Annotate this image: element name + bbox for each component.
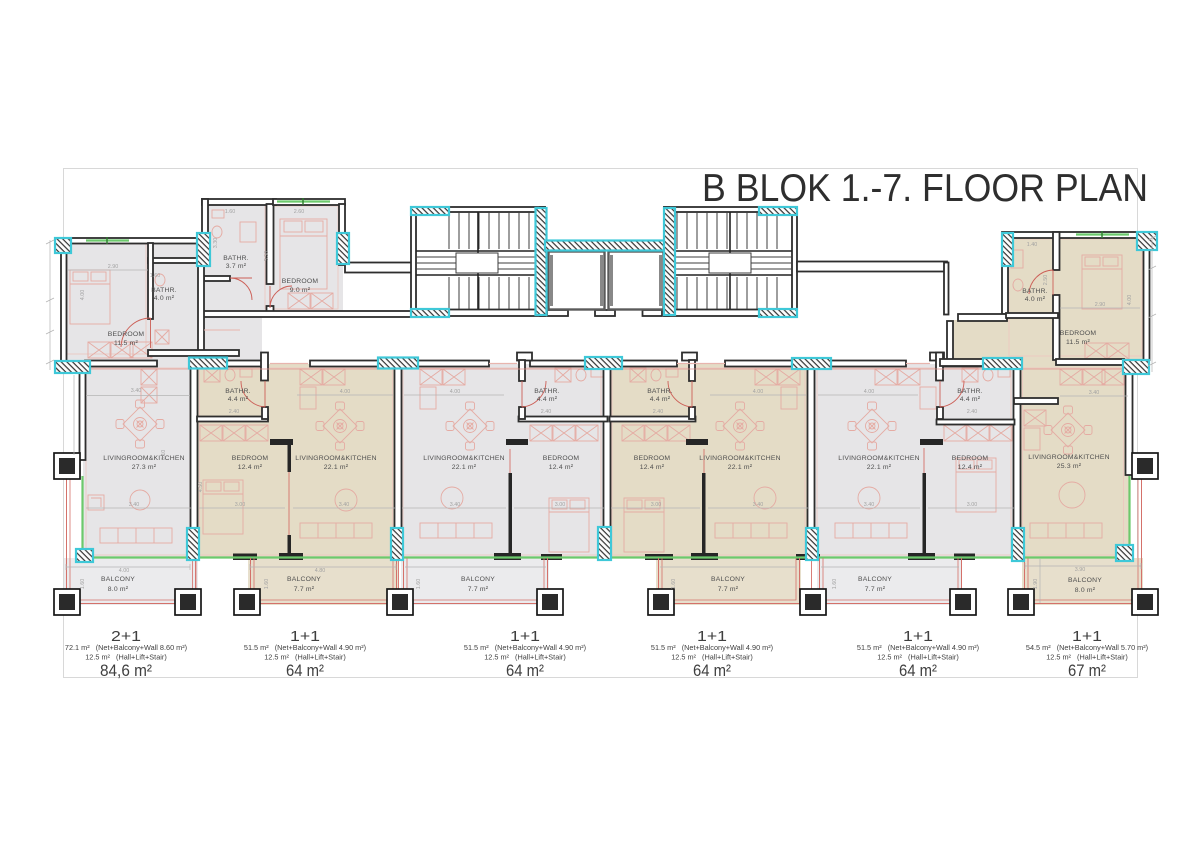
svg-text:1.60: 1.60	[671, 579, 677, 590]
svg-text:22.1 m²: 22.1 m²	[452, 464, 477, 471]
svg-text:4.0 m²: 4.0 m²	[154, 295, 175, 302]
svg-text:3.40: 3.40	[339, 502, 350, 508]
svg-text:64 m²: 64 m²	[693, 661, 731, 680]
svg-text:4.00: 4.00	[1127, 295, 1133, 306]
svg-text:11.5 m²: 11.5 m²	[1066, 339, 1090, 346]
svg-text:51.5 m² (Net+Balcony+Wall 4.: 51.5 m² (Net+Balcony+Wall 4.90 m²)	[244, 643, 366, 652]
svg-text:BEDROOM: BEDROOM	[952, 455, 989, 462]
svg-text:3.40: 3.40	[864, 502, 875, 508]
svg-text:BATHR.: BATHR.	[647, 388, 673, 395]
svg-text:11.5 m²: 11.5 m²	[114, 340, 138, 347]
svg-text:12.4 m²: 12.4 m²	[238, 464, 263, 471]
svg-text:25.3 m²: 25.3 m²	[1057, 463, 1082, 470]
svg-text:2.40: 2.40	[967, 409, 978, 415]
svg-text:2.40: 2.40	[541, 409, 552, 415]
svg-text:4.00: 4.00	[753, 389, 764, 395]
svg-text:3.40: 3.40	[129, 502, 140, 508]
svg-text:67 m²: 67 m²	[1068, 661, 1106, 680]
svg-text:LIVINGROOM&KITCHEN: LIVINGROOM&KITCHEN	[699, 455, 780, 462]
svg-text:3.00: 3.00	[651, 502, 662, 508]
svg-text:12.4 m²: 12.4 m²	[640, 464, 665, 471]
svg-text:64 m²: 64 m²	[899, 661, 937, 680]
svg-text:3.7 m²: 3.7 m²	[226, 263, 247, 270]
svg-text:LIVINGROOM&KITCHEN: LIVINGROOM&KITCHEN	[103, 455, 184, 462]
svg-text:4.50: 4.50	[198, 482, 204, 493]
svg-text:12.4 m²: 12.4 m²	[958, 464, 983, 471]
svg-text:BALCONY: BALCONY	[101, 576, 135, 583]
svg-text:1.60: 1.60	[416, 579, 422, 590]
svg-text:12.4 m²: 12.4 m²	[549, 464, 574, 471]
svg-text:64 m²: 64 m²	[506, 661, 544, 680]
svg-text:3.40: 3.40	[753, 502, 764, 508]
svg-text:6.10: 6.10	[161, 450, 167, 461]
svg-text:1.60: 1.60	[150, 273, 161, 279]
svg-text:22.1 m²: 22.1 m²	[867, 464, 892, 471]
svg-text:1.60: 1.60	[832, 579, 838, 590]
svg-text:3.40: 3.40	[450, 502, 461, 508]
svg-text:3.40: 3.40	[1089, 390, 1100, 396]
svg-text:9.0 m²: 9.0 m²	[290, 287, 311, 294]
svg-text:BALCONY: BALCONY	[1068, 577, 1102, 584]
svg-text:4.00: 4.00	[450, 389, 461, 395]
svg-text:LIVINGROOM&KITCHEN: LIVINGROOM&KITCHEN	[838, 455, 919, 462]
svg-text:51.5 m² (Net+Balcony+Wall 4.: 51.5 m² (Net+Balcony+Wall 4.90 m²)	[464, 643, 586, 652]
svg-text:4.0 m²: 4.0 m²	[1025, 296, 1046, 303]
svg-text:1.90: 1.90	[1033, 579, 1039, 590]
svg-text:4.00: 4.00	[80, 290, 86, 301]
svg-text:8.0 m²: 8.0 m²	[1075, 587, 1096, 594]
svg-text:3.90: 3.90	[1075, 567, 1086, 573]
svg-text:7.7 m²: 7.7 m²	[294, 586, 315, 593]
svg-text:51.5 m² (Net+Balcony+Wall 4.: 51.5 m² (Net+Balcony+Wall 4.90 m²)	[857, 643, 979, 652]
svg-text:1.60: 1.60	[264, 579, 270, 590]
svg-text:22.1 m²: 22.1 m²	[324, 464, 349, 471]
svg-text:84,6 m²: 84,6 m²	[100, 661, 152, 680]
svg-text:BATHR.: BATHR.	[151, 287, 177, 294]
svg-text:BEDROOM: BEDROOM	[282, 278, 319, 285]
svg-text:3.00: 3.00	[967, 502, 978, 508]
svg-text:4.4 m²: 4.4 m²	[537, 396, 558, 403]
svg-text:BATHR.: BATHR.	[957, 388, 983, 395]
svg-text:3.30: 3.30	[213, 238, 219, 249]
svg-text:4.4 m²: 4.4 m²	[960, 396, 981, 403]
svg-text:2.50: 2.50	[1043, 275, 1049, 286]
svg-text:1.40: 1.40	[1027, 242, 1038, 248]
svg-text:BALCONY: BALCONY	[461, 576, 495, 583]
svg-text:3.50: 3.50	[264, 251, 270, 262]
svg-text:22.1 m²: 22.1 m²	[728, 464, 753, 471]
svg-text:BALCONY: BALCONY	[711, 576, 745, 583]
svg-text:51.5 m² (Net+Balcony+Wall 4.: 51.5 m² (Net+Balcony+Wall 4.90 m²)	[651, 643, 773, 652]
svg-text:BALCONY: BALCONY	[858, 576, 892, 583]
svg-text:BEDROOM: BEDROOM	[634, 455, 671, 462]
svg-text:2.60: 2.60	[294, 209, 305, 215]
svg-text:BEDROOM: BEDROOM	[1060, 330, 1097, 337]
svg-text:LIVINGROOM&KITCHEN: LIVINGROOM&KITCHEN	[295, 455, 376, 462]
svg-text:BEDROOM: BEDROOM	[232, 455, 269, 462]
svg-text:72.1 m² (Net+Balcony+Wall 8.: 72.1 m² (Net+Balcony+Wall 8.60 m²)	[65, 643, 187, 652]
svg-text:27.3 m²: 27.3 m²	[132, 464, 157, 471]
svg-text:BATHR.: BATHR.	[223, 255, 249, 262]
svg-text:4.80: 4.80	[315, 568, 326, 574]
svg-text:3.00: 3.00	[555, 502, 566, 508]
svg-text:BATHR.: BATHR.	[534, 388, 560, 395]
svg-text:7.7 m²: 7.7 m²	[468, 586, 489, 593]
svg-text:2.40: 2.40	[653, 409, 664, 415]
svg-text:2.90: 2.90	[108, 264, 119, 270]
svg-text:2.90: 2.90	[1095, 302, 1106, 308]
svg-text:LIVINGROOM&KITCHEN: LIVINGROOM&KITCHEN	[423, 455, 504, 462]
svg-text:B BLOK 1.-7. FLOOR PLAN: B BLOK 1.-7. FLOOR PLAN	[702, 167, 1148, 210]
svg-text:4.00: 4.00	[864, 389, 875, 395]
svg-text:BEDROOM: BEDROOM	[108, 331, 145, 338]
svg-text:64 m²: 64 m²	[286, 661, 324, 680]
svg-text:4.4 m²: 4.4 m²	[650, 396, 671, 403]
svg-text:4.00: 4.00	[119, 568, 130, 574]
svg-text:7.7 m²: 7.7 m²	[865, 586, 886, 593]
svg-text:8.0 m²: 8.0 m²	[108, 586, 129, 593]
svg-text:4.00: 4.00	[340, 389, 351, 395]
svg-text:BATHR.: BATHR.	[1022, 288, 1048, 295]
svg-text:BEDROOM: BEDROOM	[543, 455, 580, 462]
svg-text:7.7 m²: 7.7 m²	[718, 586, 739, 593]
svg-text:1.60: 1.60	[80, 579, 86, 590]
svg-text:3.00: 3.00	[235, 502, 246, 508]
svg-text:LIVINGROOM&KITCHEN: LIVINGROOM&KITCHEN	[1028, 454, 1109, 461]
svg-text:4.4 m²: 4.4 m²	[228, 396, 249, 403]
svg-text:1.60: 1.60	[225, 209, 236, 215]
svg-text:BALCONY: BALCONY	[287, 576, 321, 583]
svg-text:3.40: 3.40	[131, 388, 142, 394]
svg-text:BATHR.: BATHR.	[225, 388, 251, 395]
svg-text:2.40: 2.40	[229, 409, 240, 415]
svg-text:54.5 m² (Net+Balcony+Wall 5.: 54.5 m² (Net+Balcony+Wall 5.70 m²)	[1026, 643, 1148, 652]
